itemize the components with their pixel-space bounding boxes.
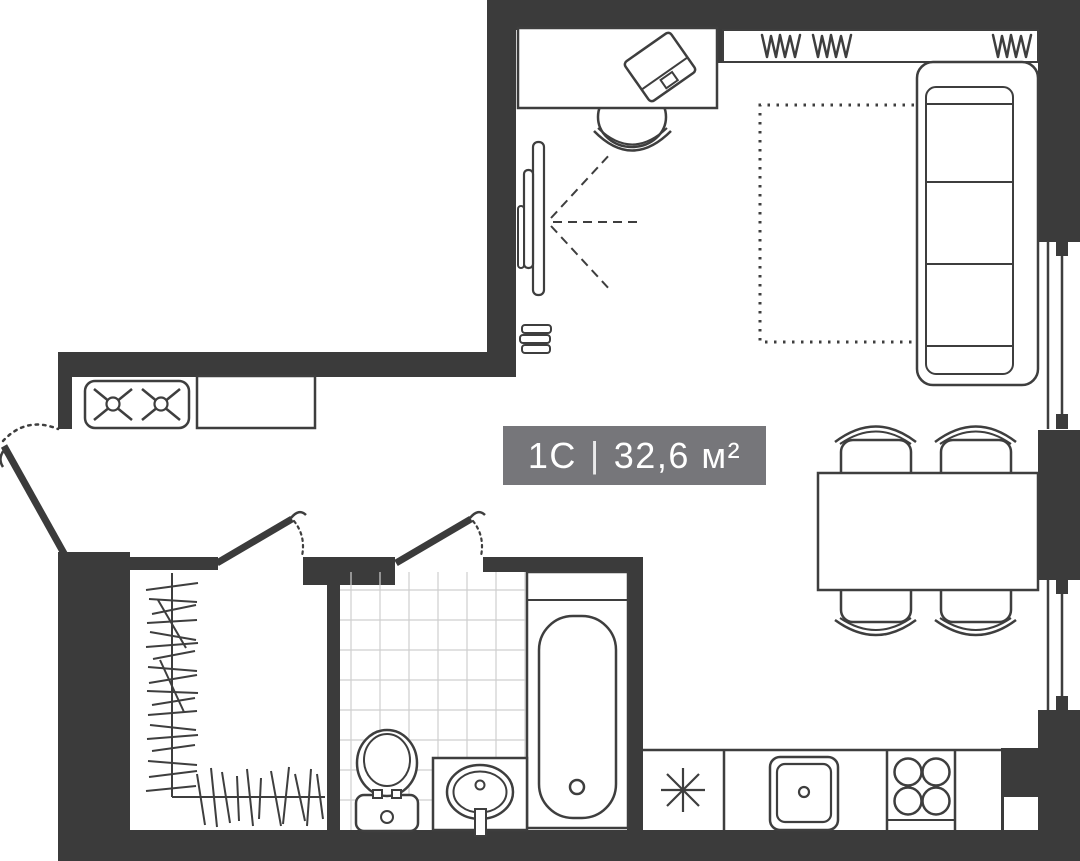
sink-vanity (433, 758, 527, 836)
unit-type-text: 1С (528, 435, 577, 477)
sofa-outline (917, 62, 1038, 385)
dining-area (818, 427, 1038, 636)
wardrobe-door-handle (291, 512, 306, 518)
wall-bath-right (627, 557, 643, 830)
wall-right-pier (1038, 430, 1080, 580)
rug-outline (760, 105, 923, 342)
tv-icon (533, 142, 544, 295)
wardrobe-door (217, 512, 306, 563)
sofa (917, 62, 1038, 385)
dining-table (818, 473, 1038, 590)
toilet (356, 730, 418, 831)
window-lower (1048, 580, 1068, 710)
floor-plan: 1С | 32,6 м² (0, 0, 1080, 861)
bathroom-door-leaf (396, 519, 471, 563)
wall-wardrobe-bath-divider (327, 557, 340, 830)
kitchen-top-left (85, 376, 315, 428)
wall-top-left (58, 352, 490, 377)
tv-mount (518, 206, 524, 268)
wall-left-lower (58, 552, 130, 830)
wardrobe-room (146, 573, 325, 827)
bathroom-door-swing-arc (473, 521, 482, 556)
hob-4-burner-icon (887, 759, 955, 821)
bathroom-door-handle (470, 512, 485, 518)
sink-faucet (475, 809, 486, 836)
unit-area-label: 1С | 32,6 м² (503, 426, 766, 485)
desk-area (518, 28, 717, 151)
wall-top (487, 0, 1080, 30)
tv-area (518, 142, 637, 353)
wall-right-top (1038, 0, 1080, 242)
kitchen-sink-icon (770, 757, 838, 830)
entry-door (0, 425, 66, 557)
window-upper (1048, 241, 1068, 429)
tv-bracket (524, 170, 533, 268)
wall-tv-partition (487, 0, 516, 377)
stove-2-burner (85, 381, 189, 428)
bathroom (340, 572, 628, 836)
top-shelf (723, 30, 1038, 62)
wardrobe-door-leaf (217, 519, 292, 563)
toilet-tank (356, 795, 418, 831)
wall-bath-top (483, 557, 643, 572)
entry-door-leaf (4, 446, 66, 557)
bathtub (527, 572, 628, 828)
unit-area-text: 32,6 м² (614, 435, 741, 477)
kitchen-bottom (643, 750, 1001, 830)
wall-bottom (58, 830, 1080, 861)
tv-sight-lines (551, 152, 637, 292)
wall-wardrobe-top (130, 557, 218, 570)
wall-between-doors (303, 557, 395, 585)
counter-top-left (197, 376, 315, 428)
radiator-icon (520, 325, 551, 353)
entry-door-swing-arc (3, 425, 58, 441)
entry-door-handle (0, 449, 5, 467)
shaft-notch (1004, 797, 1038, 830)
wall-entry-stub (58, 377, 72, 429)
appliance-slot-asterisk-icon (661, 768, 705, 812)
label-separator: | (590, 434, 601, 476)
bathroom-door (396, 512, 485, 563)
wardrobe-door-swing-arc (294, 521, 303, 556)
